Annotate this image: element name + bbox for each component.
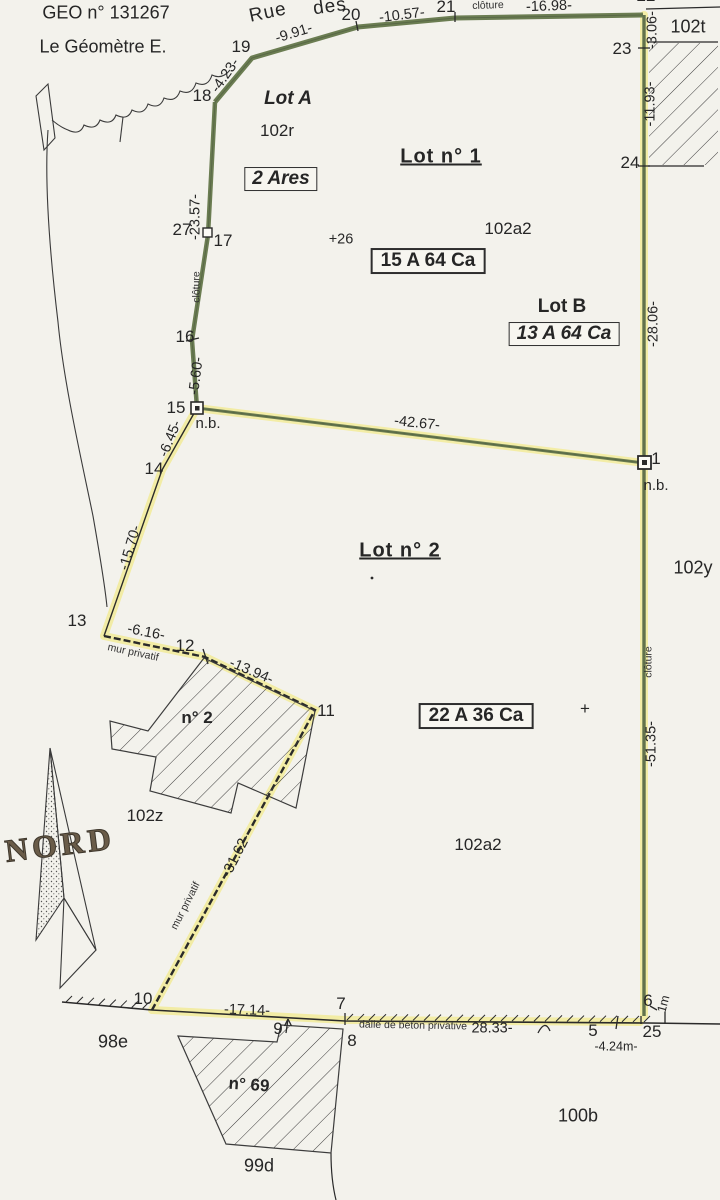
point-6: 6 [643,992,652,1010]
area-13a64ca: 13 A 64 Ca [509,322,620,346]
mur-privatif-lower: mur privatif [169,880,202,931]
meas-6-45: -6.45- [157,419,185,460]
point-17: 17 [214,232,233,250]
parcel-99d: 99d [244,1157,274,1176]
area-2-ares: 2 Ares [244,167,317,191]
point-25: 25 [643,1023,662,1041]
parcel-102a2-bottom: 102a2 [454,836,501,854]
point-26: +26 [329,232,354,247]
meas-31-62: -31.62- [220,832,254,880]
point-5: 5 [588,1022,597,1040]
point-8: 8 [347,1032,356,1050]
meas-5-60: -5.60- [187,356,207,395]
meas-4-23: -4.23- [209,56,243,96]
point-15: 15 [167,399,186,417]
point-20: 20 [342,6,361,24]
parcel-102a2-top: 102a2 [484,220,531,238]
cloture-right: clôture [643,646,654,678]
lot-b-title: Lot B [538,297,587,317]
meas-42-67: -42.67- [393,414,440,434]
point-7: 7 [336,995,345,1013]
meas-13-94: -13.94- [227,656,275,688]
survey-plan-page: GEO n° 131267Le Géomètre E.Ruedes1819202… [0,0,720,1200]
point-9: 9 [273,1020,282,1038]
north-label: NORD [3,822,116,869]
lot-1-title: Lot n° 1 [400,147,482,168]
parcel-98e: 98e [98,1033,128,1052]
point-10: 10 [134,990,153,1008]
meas-3-06: -3.06- [645,11,660,49]
point-1: 1 [651,450,660,468]
meas-17-14: -17.14- [224,1003,270,1020]
point-12: 12 [176,637,195,655]
meas-11-93: -11.93- [643,82,658,127]
building-n2: n° 2 [181,709,212,727]
mur-privatif-upper: mur privatif [106,642,159,664]
geo-number: GEO n° 131267 [42,4,169,23]
meas-28-33: 28.33- [471,1021,512,1036]
point-18: 18 [193,87,212,105]
cloture-left: clôture [191,271,202,303]
point-11: 11 [317,702,335,720]
labels-layer: GEO n° 131267Le Géomètre E.Ruedes1819202… [0,0,720,1200]
meas-1m: 1m [655,994,672,1014]
meas-15-70: -15.70- [117,524,144,572]
meas-4-24m: -4.24m- [594,1040,637,1053]
lot-2-title: Lot n° 2 [359,541,441,562]
point-23: 23 [613,40,632,58]
cloture-top: clôture [472,0,504,12]
point-21: 21 [437,0,456,16]
point-13: 13 [68,612,87,630]
area-15a64ca: 15 A 64 Ca [371,248,486,274]
nb-15: n.b. [195,416,220,432]
meas-23-57: -23.57- [188,194,203,240]
surveyor-name: Le Géomètre E. [39,38,166,57]
survey-cross: + [580,700,590,718]
point-24: 24 [621,154,640,172]
lot-a-title: Lot A [264,89,312,109]
meas-51-35: -51.35- [644,721,659,767]
parcel-100b: 100b [558,1107,598,1126]
parcel-102y: 102y [673,559,712,578]
area-22a36ca: 22 A 36 Ca [419,703,534,729]
point-14: 14 [145,460,164,478]
building-n69: n° 69 [228,1075,270,1096]
parcel-102r: 102r [260,122,294,140]
point-22: 22 [637,0,656,5]
meas-28-06: -28.06- [646,301,661,347]
dalle-beton: dalle de béton privative [359,1020,467,1033]
point-16: 16 [176,328,195,346]
meas-16-98: -16.98- [526,0,572,15]
meas-10-57: -10.57- [378,6,425,27]
street-name-rue: Rue [247,0,288,27]
meas-9-91: -9.91- [274,21,315,47]
parcel-102z: 102z [127,807,164,825]
parcel-102t: 102t [670,18,705,37]
point-19: 19 [232,38,251,56]
nb-1: n.b. [643,478,668,494]
meas-6-16: -6.16- [126,622,166,644]
